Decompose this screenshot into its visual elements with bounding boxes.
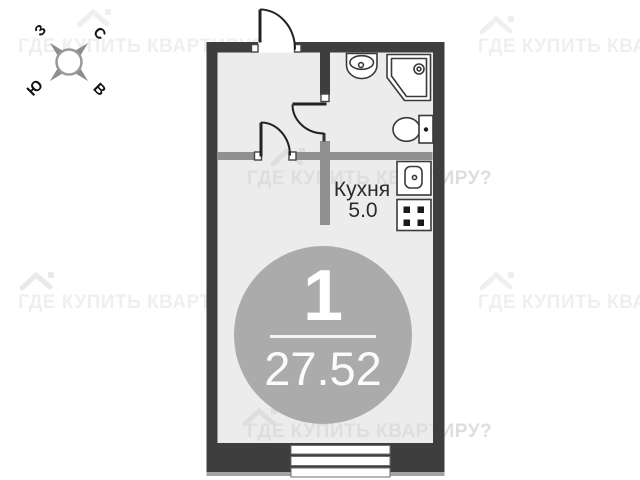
house-logo-icon	[271, 146, 307, 168]
watermark: ГДЕ КУПИТЬ КВАРТИРУ?	[478, 292, 640, 314]
badge-divider	[270, 335, 376, 338]
kitchen-area: 5.0	[313, 199, 413, 223]
rooms-count: 1	[303, 260, 343, 332]
watermark-text: ГДЕ КУПИТЬ КВАРТИРУ?	[478, 292, 640, 313]
entry-door	[260, 10, 295, 50]
compass-hub	[57, 50, 82, 75]
watermark-text: ГДЕ КУПИТЬ КВАРТИРУ?	[478, 36, 640, 57]
entry-opening	[258, 42, 295, 53]
watermark: ГДЕ КУПИТЬ КВАРТИРУ?	[478, 36, 640, 58]
house-logo-icon	[480, 270, 516, 292]
house-logo-icon	[20, 270, 56, 292]
wall-shadow	[207, 472, 445, 477]
watermark-text: ГДЕ КУПИТЬ КВАРТИРУ?	[247, 421, 492, 442]
floorplan-page: ГДЕ КУПИТЬ КВАРТИРУ? ГДЕ КУПИТЬ КВАРТИРУ…	[0, 0, 640, 480]
total-area: 27.52	[264, 345, 382, 392]
rooms-area-badge: 1 27.52	[234, 246, 412, 424]
window	[291, 446, 390, 478]
house-logo-icon	[480, 14, 516, 36]
watermark: ГДЕ КУПИТЬ КВАРТИРУ?	[247, 421, 492, 443]
